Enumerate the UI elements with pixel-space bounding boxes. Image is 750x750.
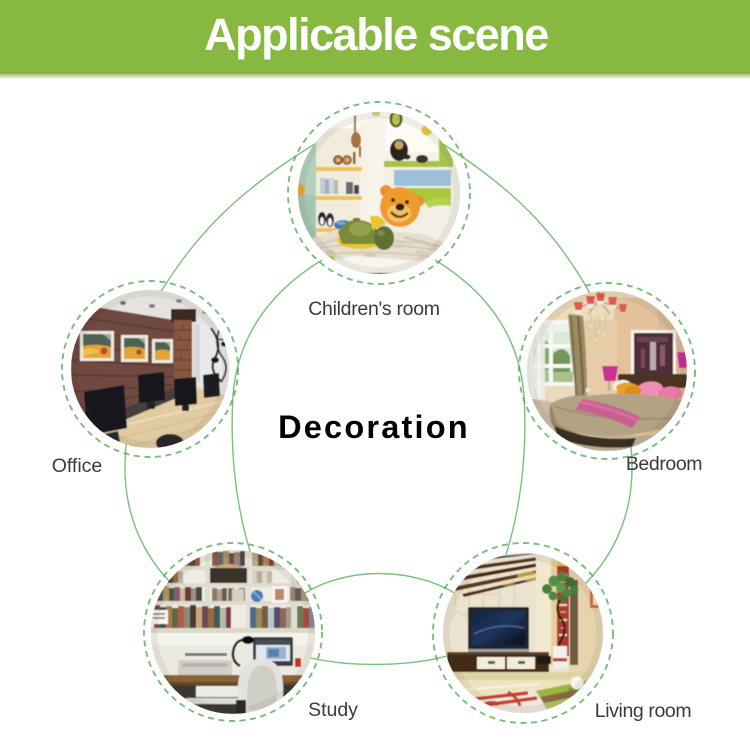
- svg-text:Decoration: Decoration: [278, 409, 470, 445]
- svg-text:Bedroom: Bedroom: [626, 453, 702, 475]
- svg-text:Office: Office: [52, 455, 103, 477]
- svg-text:Study: Study: [308, 699, 358, 721]
- svg-text:Children's room: Children's room: [308, 298, 439, 320]
- svg-text:Applicable scene: Applicable scene: [204, 9, 548, 60]
- svg-text:Living room: Living room: [595, 700, 691, 722]
